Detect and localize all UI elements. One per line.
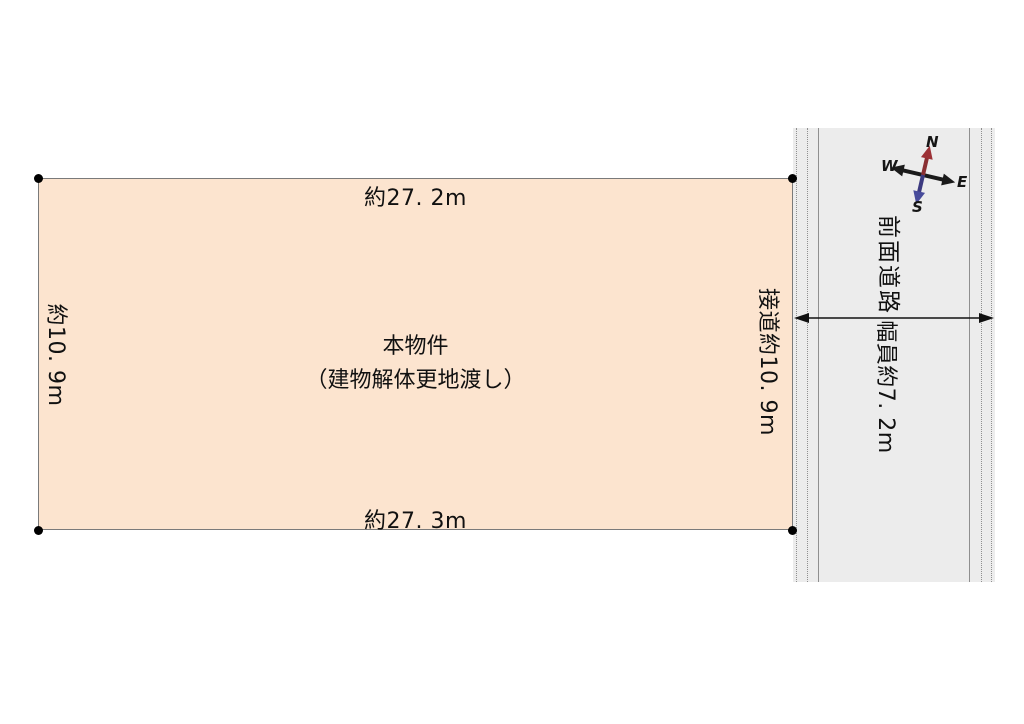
- property-name-line1: 本物件: [38, 330, 793, 364]
- road-edge-dotted-line: [796, 128, 797, 582]
- dimension-top: 約27. 2m: [38, 180, 793, 212]
- compass-rose: N E S W: [866, 128, 982, 224]
- property-name-line2: （建物解体更地渡し）: [38, 364, 793, 398]
- road-shoulder-line: [818, 128, 819, 582]
- compass-east-label: E: [957, 173, 967, 191]
- road-name-label: 前面道路: [874, 215, 908, 315]
- site-plan-canvas: 前面道路 幅員約7. 2m N E S W 約27. 2m 約27. 3m 約1…: [0, 0, 1024, 724]
- compass-south-label: S: [912, 198, 923, 216]
- dimension-bottom: 約27. 3m: [38, 503, 793, 535]
- property-name-block: 本物件 （建物解体更地渡し）: [38, 330, 793, 398]
- road-edge-dotted-line: [807, 128, 808, 582]
- compass-north-label: N: [926, 133, 939, 151]
- road-width-label: 幅員約7. 2m: [872, 320, 904, 453]
- road-edge-dotted-line: [991, 128, 992, 582]
- compass-west-label: W: [881, 157, 898, 175]
